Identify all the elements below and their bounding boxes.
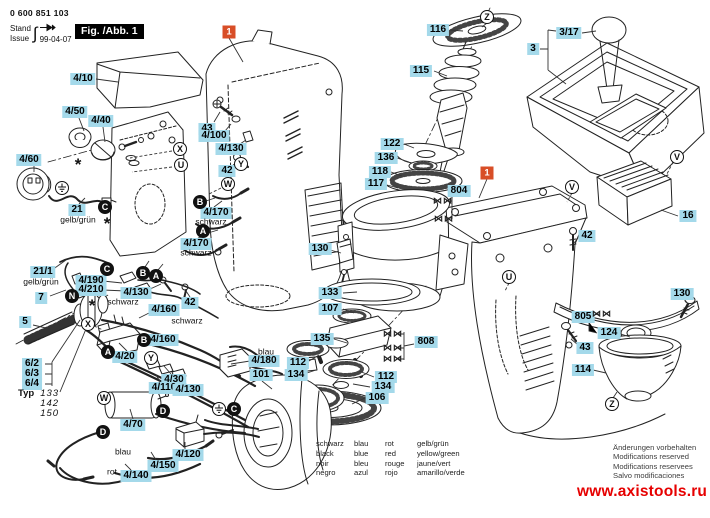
part-label-4-40: 4/40	[88, 115, 113, 127]
color-note-label: schwarz	[107, 298, 138, 307]
part-label-42: 42	[181, 297, 198, 309]
part-label-116: 116	[427, 24, 449, 36]
part-label-106: 106	[366, 392, 389, 404]
part-label-134: 134	[285, 369, 308, 381]
marker-A: A	[196, 224, 210, 238]
part-label-4-10: 4/10	[70, 73, 95, 85]
marker-X: X	[81, 317, 95, 331]
part-label-16: 16	[679, 210, 696, 222]
not-available-separately-icon: ⋈⋈	[383, 343, 403, 354]
footer-note: Modifications reservees	[613, 462, 696, 471]
marker-N: N	[65, 289, 79, 303]
asterisk-mark: *	[104, 219, 111, 229]
not-available-separately-icon: ⋈⋈	[592, 309, 612, 320]
footer-note: Modifications reserved	[613, 452, 696, 461]
part-label-4-160: 4/160	[147, 334, 178, 346]
asterisk-mark: *	[75, 160, 82, 170]
part-label-4-210: 4/210	[75, 284, 106, 296]
part-label-118: 118	[369, 166, 391, 178]
earth-symbol-icon	[55, 181, 69, 195]
part-label-3: 3	[527, 43, 539, 55]
marker-Z: Z	[605, 397, 619, 411]
legend-term: noir	[316, 459, 354, 469]
color-note-label: rot	[107, 468, 117, 477]
legend-term: schwarz	[316, 439, 354, 449]
part-label-3-17: 3/17	[556, 27, 581, 39]
legend-term: red	[385, 449, 417, 459]
color-legend: schwarzblaurotgelb/grünblackblueredyello…	[316, 439, 465, 478]
footer-notes: Änderungen vorbehaltenModifications rese…	[613, 443, 696, 481]
part-label-808: 808	[415, 336, 438, 348]
footer-note: Salvo modificaciones	[613, 471, 696, 480]
part-label-107: 107	[319, 303, 342, 315]
part-label-4-130: 4/130	[215, 143, 246, 155]
issue-date: 99-04-07	[40, 35, 72, 45]
marker-U: U	[502, 270, 516, 284]
issue-label: Issue	[10, 34, 31, 44]
color-note-label: blau	[115, 448, 131, 457]
part-label-115: 115	[410, 65, 432, 77]
assembly-callout-1: 1	[223, 26, 236, 39]
color-note-label: schwarz	[180, 249, 211, 258]
part-label-130: 130	[671, 288, 694, 300]
marker-X: X	[173, 142, 187, 156]
marker-V: V	[670, 150, 684, 164]
typ-block: Typ 133142150	[18, 389, 59, 419]
color-note-label: schwarz	[171, 317, 202, 326]
marker-C: C	[100, 262, 114, 276]
marker-W: W	[221, 177, 235, 191]
typ-model: 150	[40, 409, 59, 419]
marker-C: C	[98, 200, 112, 214]
typ-models: 133142150	[40, 389, 59, 419]
marker-D: D	[156, 404, 170, 418]
marker-Z: Z	[480, 10, 494, 24]
color-note-label: blau	[258, 348, 274, 357]
stand-label: Stand	[10, 24, 31, 34]
legend-term: jaune/vert	[417, 459, 465, 469]
marker-V: V	[565, 180, 579, 194]
marker-C: C	[227, 402, 241, 416]
parts-diagram-page: 4/104/504/404/602121/1756/26/36/4434/100…	[0, 0, 710, 518]
legend-term: yellow/green	[417, 449, 465, 459]
part-label-112: 112	[287, 357, 309, 369]
asterisk-mark: *	[89, 301, 96, 311]
marker-B: B	[136, 266, 150, 280]
marker-W: W	[97, 391, 111, 405]
legend-term: rojo	[385, 468, 417, 478]
part-label-4-150: 4/150	[147, 460, 178, 472]
legend-term: blau	[354, 439, 385, 449]
marker-D: D	[96, 425, 110, 439]
not-available-separately-icon: ⋈⋈	[383, 329, 403, 340]
marker-B: B	[137, 333, 151, 347]
part-label-5: 5	[19, 316, 31, 328]
figure-label: Fig. /Abb. 1	[75, 24, 144, 39]
marker-U: U	[174, 158, 188, 172]
legend-term: amarillo/verde	[417, 468, 465, 478]
earth-symbol-icon	[212, 402, 226, 416]
part-label-42: 42	[218, 165, 235, 177]
part-label-805: 805	[572, 311, 595, 323]
not-available-separately-icon: ⋈⋈	[383, 354, 403, 365]
website-link[interactable]: www.axistools.ru	[577, 483, 707, 501]
part-label-4-100: 4/100	[198, 130, 229, 142]
not-available-separately-icon: ⋈⋈	[433, 196, 453, 207]
part-label-4-160: 4/160	[148, 304, 179, 316]
part-label-7: 7	[35, 292, 47, 304]
color-note-label: gelb/grün	[23, 278, 58, 287]
part-label-4-60: 4/60	[16, 154, 41, 166]
hand-stamp-icon	[40, 23, 72, 35]
legend-term: gelb/grün	[417, 439, 465, 449]
marker-Y: Y	[234, 157, 248, 171]
stand-issue-block: Stand Issue ∫ 99-04-07	[10, 23, 72, 44]
legend-term: negro	[316, 468, 354, 478]
part-label-114: 114	[572, 364, 594, 376]
footer-note: Änderungen vorbehalten	[613, 443, 696, 452]
marker-A: A	[149, 269, 163, 283]
part-number: 0 600 851 103	[10, 8, 69, 18]
assembly-callout-1: 1	[481, 167, 494, 180]
legend-term: black	[316, 449, 354, 459]
part-label-43: 43	[576, 342, 593, 354]
color-note-label: gelb/grün	[60, 216, 95, 225]
part-label-122: 122	[381, 138, 404, 150]
typ-label: Typ	[18, 389, 34, 419]
legend-term: bleu	[354, 459, 385, 469]
part-label-136: 136	[375, 152, 398, 164]
part-label-4-20: 4/20	[112, 351, 137, 363]
part-label-4-130: 4/130	[172, 384, 203, 396]
part-label-4-70: 4/70	[120, 419, 145, 431]
marker-A: A	[101, 345, 115, 359]
part-label-4-140: 4/140	[120, 470, 151, 482]
brace-icon: ∫	[33, 29, 38, 39]
part-label-133: 133	[319, 287, 342, 299]
part-label-124: 124	[598, 327, 621, 339]
part-label-130: 130	[309, 243, 332, 255]
legend-term: azul	[354, 468, 385, 478]
part-label-4-50: 4/50	[62, 106, 87, 118]
part-label-101: 101	[250, 369, 273, 381]
marker-B: B	[193, 195, 207, 209]
legend-term: rot	[385, 439, 417, 449]
part-label-135: 135	[311, 333, 334, 345]
part-label-42: 42	[578, 230, 595, 242]
legend-term: rouge	[385, 459, 417, 469]
legend-term: blue	[354, 449, 385, 459]
not-available-separately-icon: ⋈⋈	[434, 214, 454, 225]
part-label-4-180: 4/180	[248, 355, 279, 367]
part-label-117: 117	[365, 178, 387, 190]
marker-Y: Y	[144, 351, 158, 365]
